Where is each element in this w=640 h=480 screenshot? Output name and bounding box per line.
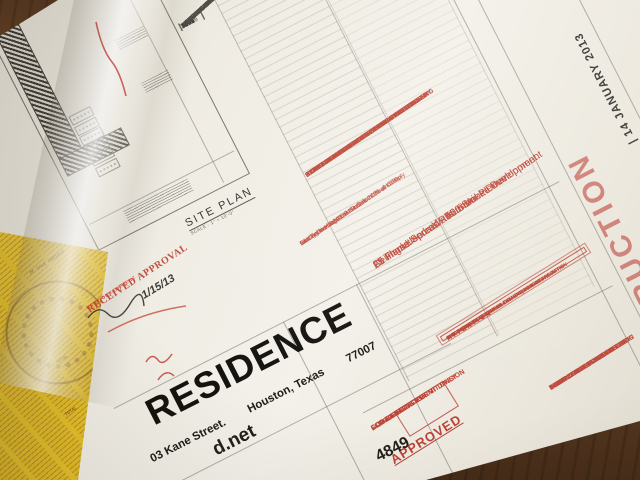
red-check-scribble: [158, 373, 174, 380]
signature-scribble: [88, 294, 144, 318]
red-arc-scribble: [108, 306, 186, 332]
red-check-scribble: [146, 354, 172, 362]
plan-photo-scene: OF SALE 0001010 TOTAL TOTAL: [0, 0, 640, 480]
pen-scribbles: [0, 0, 640, 480]
red-pen-line: [96, 22, 126, 96]
